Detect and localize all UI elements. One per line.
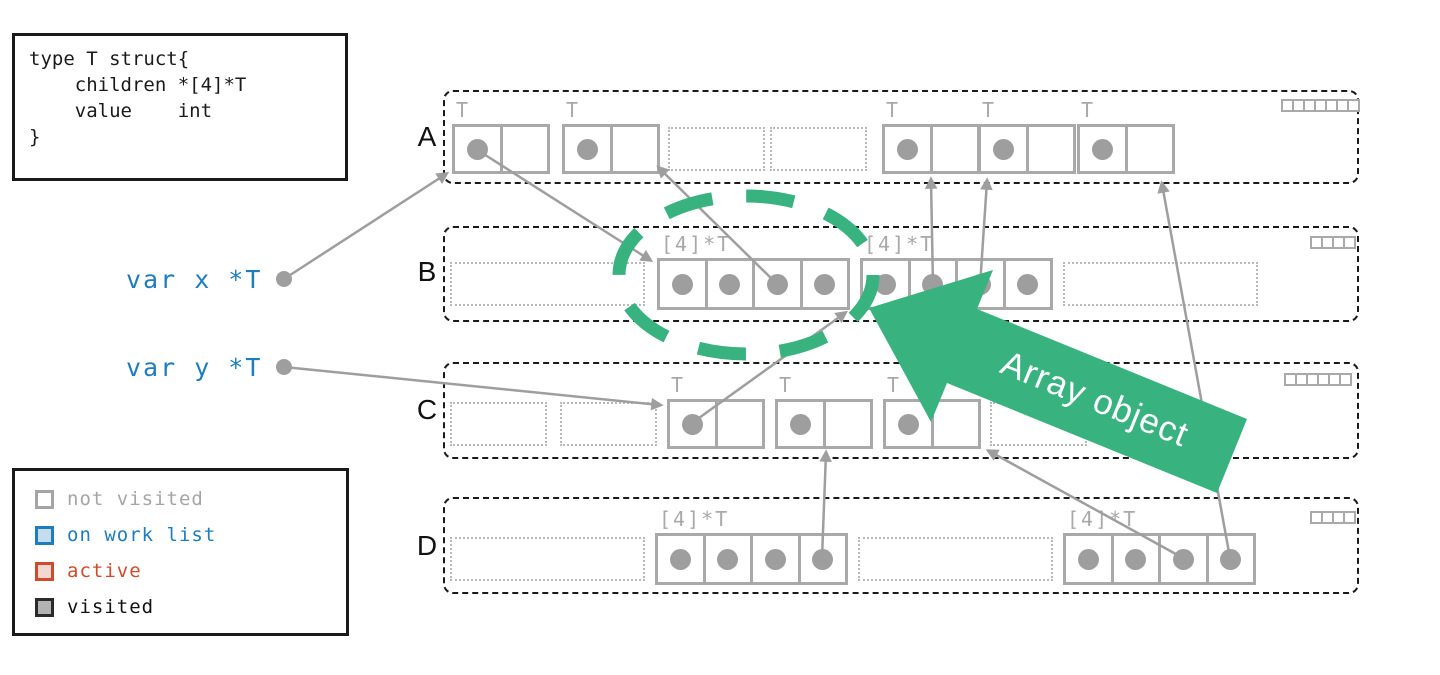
object-type-label: [4]*T (659, 507, 729, 531)
bitmap-cell (1312, 513, 1323, 522)
object-type-label: T (886, 98, 900, 122)
object-type-label: T (1081, 98, 1095, 122)
free-slot (990, 402, 1087, 446)
object-type-label: T (887, 373, 901, 397)
pointer-dot (1220, 549, 1241, 570)
legend-item-active: active (35, 553, 346, 589)
bitmap-cell (1294, 101, 1305, 110)
pointer-slot (670, 402, 718, 446)
pointer-slot (933, 127, 978, 171)
pointer-slot (1114, 536, 1162, 582)
legend-label: active (67, 560, 142, 582)
free-slot (770, 127, 867, 171)
pointer-slot (934, 402, 979, 446)
bitmap-cell (1338, 101, 1349, 110)
bitmap-cell (1297, 375, 1308, 384)
pointer-dot (812, 549, 833, 570)
pointer-dot (790, 414, 811, 435)
bitmap-cell (1334, 513, 1345, 522)
pointer-dot (875, 274, 896, 295)
pointer-slot (706, 536, 754, 582)
array-object: [4]*T (860, 258, 1053, 310)
pointer-dot (670, 549, 691, 570)
pointer-slot (863, 261, 911, 307)
array-object: [4]*T (657, 258, 850, 310)
array-object: [4]*T (655, 533, 848, 585)
legend-label: visited (67, 596, 154, 618)
object-type-label: [4]*T (864, 232, 934, 256)
struct-object: T (882, 124, 980, 174)
free-slot (668, 127, 765, 171)
allocation-bitmap-D (1310, 511, 1356, 524)
free-slot (450, 537, 645, 581)
free-slot (1063, 262, 1258, 306)
pointer-dot (1017, 274, 1038, 295)
free-slot (450, 262, 645, 306)
pointer-dot (897, 139, 918, 160)
heap-region-label-A: A (410, 121, 444, 153)
pointer-slot (981, 127, 1029, 171)
pointer-slot (911, 261, 959, 307)
type-definition-box: type T struct{ children *[4]*T value int… (12, 33, 348, 181)
pointer-dot (1092, 139, 1113, 160)
object-type-label: T (982, 98, 996, 122)
object-type-label: T (779, 373, 793, 397)
pointer-slot (708, 261, 756, 307)
visited-swatch-icon (35, 598, 54, 617)
bitmap-cell (1323, 513, 1334, 522)
pointer-dot (682, 414, 703, 435)
struct-object: T (452, 124, 550, 174)
pointer-slot (801, 536, 846, 582)
bitmap-cell (1323, 238, 1334, 247)
struct-object: T (667, 399, 765, 449)
pointer-dot (719, 274, 740, 295)
object-type-label: T (456, 98, 470, 122)
variable-pointer-dot (276, 271, 292, 287)
bitmap-cell (1345, 238, 1354, 247)
bitmap-cell (1341, 375, 1350, 384)
on-work-list-swatch-icon (35, 526, 54, 545)
legend-item-not-visited: not visited (35, 481, 346, 517)
bitmap-cell (1349, 101, 1358, 110)
go-gc-heap-diagram: type T struct{ children *[4]*T value int… (0, 0, 1440, 675)
pointer-dot (1173, 549, 1194, 570)
allocation-bitmap-B (1310, 236, 1356, 249)
pointer-dot (467, 139, 488, 160)
pointer-slot (1066, 536, 1114, 582)
pointer-dot (993, 139, 1014, 160)
heap-region-label-B: B (410, 256, 444, 288)
array-object: [4]*T (1063, 533, 1256, 585)
free-slot (450, 402, 547, 446)
object-type-label: [4]*T (1067, 507, 1137, 531)
pointer-slot (660, 261, 708, 307)
not-visited-swatch-icon (35, 490, 54, 509)
pointer-dot (577, 139, 598, 160)
var-y-label: var y *T (126, 353, 262, 382)
pointer-slot (826, 402, 871, 446)
pointer-slot (503, 127, 548, 171)
pointer-slot (1080, 127, 1128, 171)
pointer-dot (765, 549, 786, 570)
pointer-slot (803, 261, 848, 307)
legend-label: not visited (67, 488, 204, 510)
pointer-slot (613, 127, 658, 171)
bitmap-cell (1305, 101, 1316, 110)
pointer-slot (958, 261, 1006, 307)
legend-item-on-work-list: on work list (35, 517, 346, 553)
pointer-dot (717, 549, 738, 570)
pointer-dot (898, 414, 919, 435)
heap-region-label-C: C (410, 394, 444, 426)
active-swatch-icon (35, 562, 54, 581)
legend-box: not visited on work list active visited (12, 468, 349, 636)
pointer-slot (1161, 536, 1209, 582)
allocation-bitmap-A (1281, 99, 1360, 112)
pointer-slot (886, 402, 934, 446)
struct-object: T (775, 399, 873, 449)
struct-object: T (978, 124, 1076, 174)
legend-item-visited: visited (35, 589, 346, 625)
legend-label: on work list (67, 524, 216, 546)
struct-object: T (1077, 124, 1175, 174)
bitmap-cell (1334, 238, 1345, 247)
pointer-slot (1128, 127, 1173, 171)
allocation-bitmap-C (1284, 373, 1352, 386)
pointer-slot (455, 127, 503, 171)
pointer-slot (778, 402, 826, 446)
struct-object: T (562, 124, 660, 174)
pointer-slot (1006, 261, 1051, 307)
pointer-dot (922, 274, 943, 295)
var-x-label: var x *T (126, 265, 262, 294)
bitmap-cell (1316, 101, 1327, 110)
pointer-slot (1029, 127, 1074, 171)
pointer-dot (970, 274, 991, 295)
struct-object: T (883, 399, 981, 449)
type-definition-code: type T struct{ children *[4]*T value int… (29, 46, 331, 150)
free-slot (858, 537, 1053, 581)
pointer-dot (767, 274, 788, 295)
pointer-dot (1125, 549, 1146, 570)
variable-pointer-dot (276, 359, 292, 375)
pointer-dot (672, 274, 693, 295)
heap-region-label-D: D (410, 530, 444, 562)
bitmap-cell (1283, 101, 1294, 110)
pointer-slot (658, 536, 706, 582)
pointer-slot (718, 402, 763, 446)
pointer-slot (565, 127, 613, 171)
pointer-slot (753, 536, 801, 582)
pointer-slot (1209, 536, 1254, 582)
object-type-label: T (566, 98, 580, 122)
free-slot (560, 402, 657, 446)
object-type-label: [4]*T (661, 232, 731, 256)
object-type-label: T (671, 373, 685, 397)
pointer-slot (885, 127, 933, 171)
pointer-dot (1078, 549, 1099, 570)
pointer-dot (814, 274, 835, 295)
pointer-slot (755, 261, 803, 307)
bitmap-cell (1308, 375, 1319, 384)
bitmap-cell (1312, 238, 1323, 247)
bitmap-cell (1345, 513, 1354, 522)
bitmap-cell (1327, 101, 1338, 110)
bitmap-cell (1319, 375, 1330, 384)
bitmap-cell (1286, 375, 1297, 384)
bitmap-cell (1330, 375, 1341, 384)
